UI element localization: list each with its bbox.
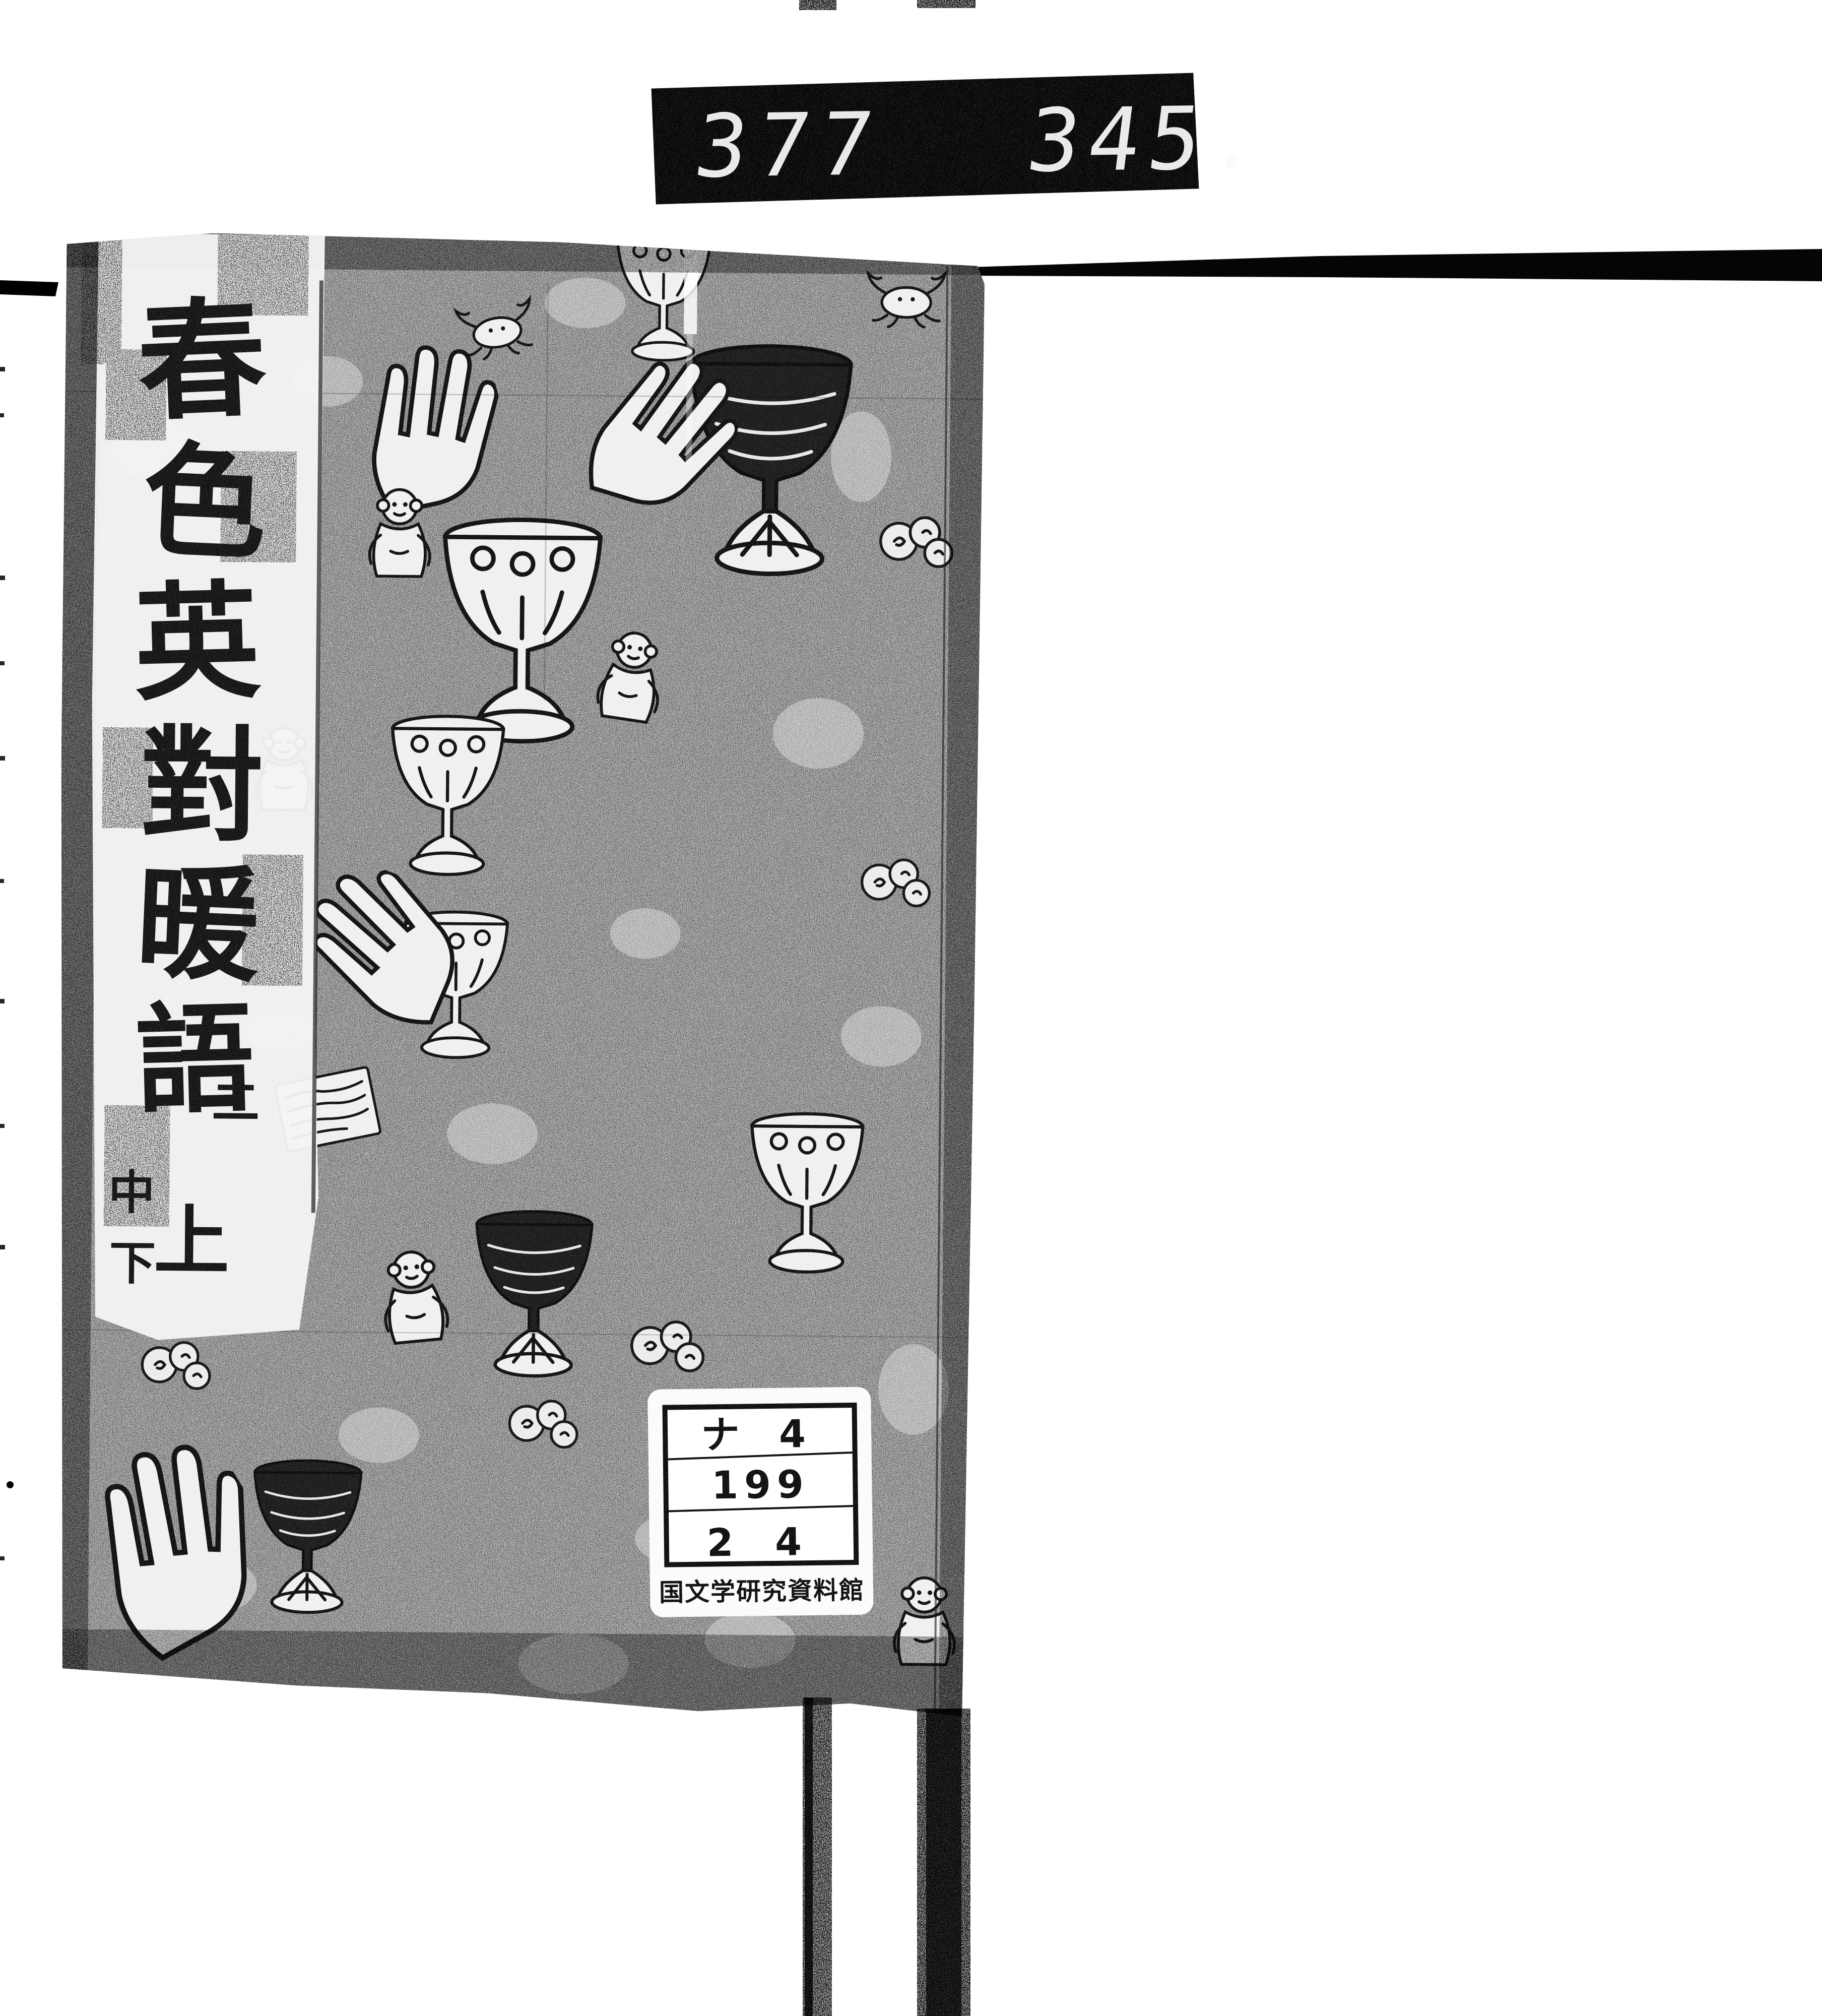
left-margin-artifacts bbox=[0, 280, 58, 1560]
counter-digits-right: 345. bbox=[1022, 87, 1275, 192]
film-edge-mark bbox=[917, 0, 975, 8]
frame-counter-display: 377 345. bbox=[651, 72, 1277, 204]
scan-line-top-right bbox=[971, 249, 1822, 281]
left-edge-bar bbox=[0, 280, 58, 296]
scan-canvas: 377 345. bbox=[0, 0, 1822, 2016]
film-edge-mark bbox=[799, 0, 836, 10]
counter-digits-left: 377 bbox=[689, 94, 889, 198]
backing-bars bbox=[803, 1697, 970, 2016]
backing-bar-right-core bbox=[926, 1709, 961, 2016]
backing-bar-left-core bbox=[805, 1697, 813, 2016]
cover-sparkle bbox=[53, 232, 986, 1718]
film-edge-marks-top bbox=[799, 0, 975, 10]
ink-dot bbox=[7, 1481, 14, 1488]
book-cover: 春 色 英 對 暖 語 二 上 中 下 ナ 4 bbox=[53, 222, 986, 1718]
scanned-page: { "scan": { "counter": { "left_digits": … bbox=[0, 0, 1822, 2016]
left-margin-ticks bbox=[0, 367, 5, 1560]
